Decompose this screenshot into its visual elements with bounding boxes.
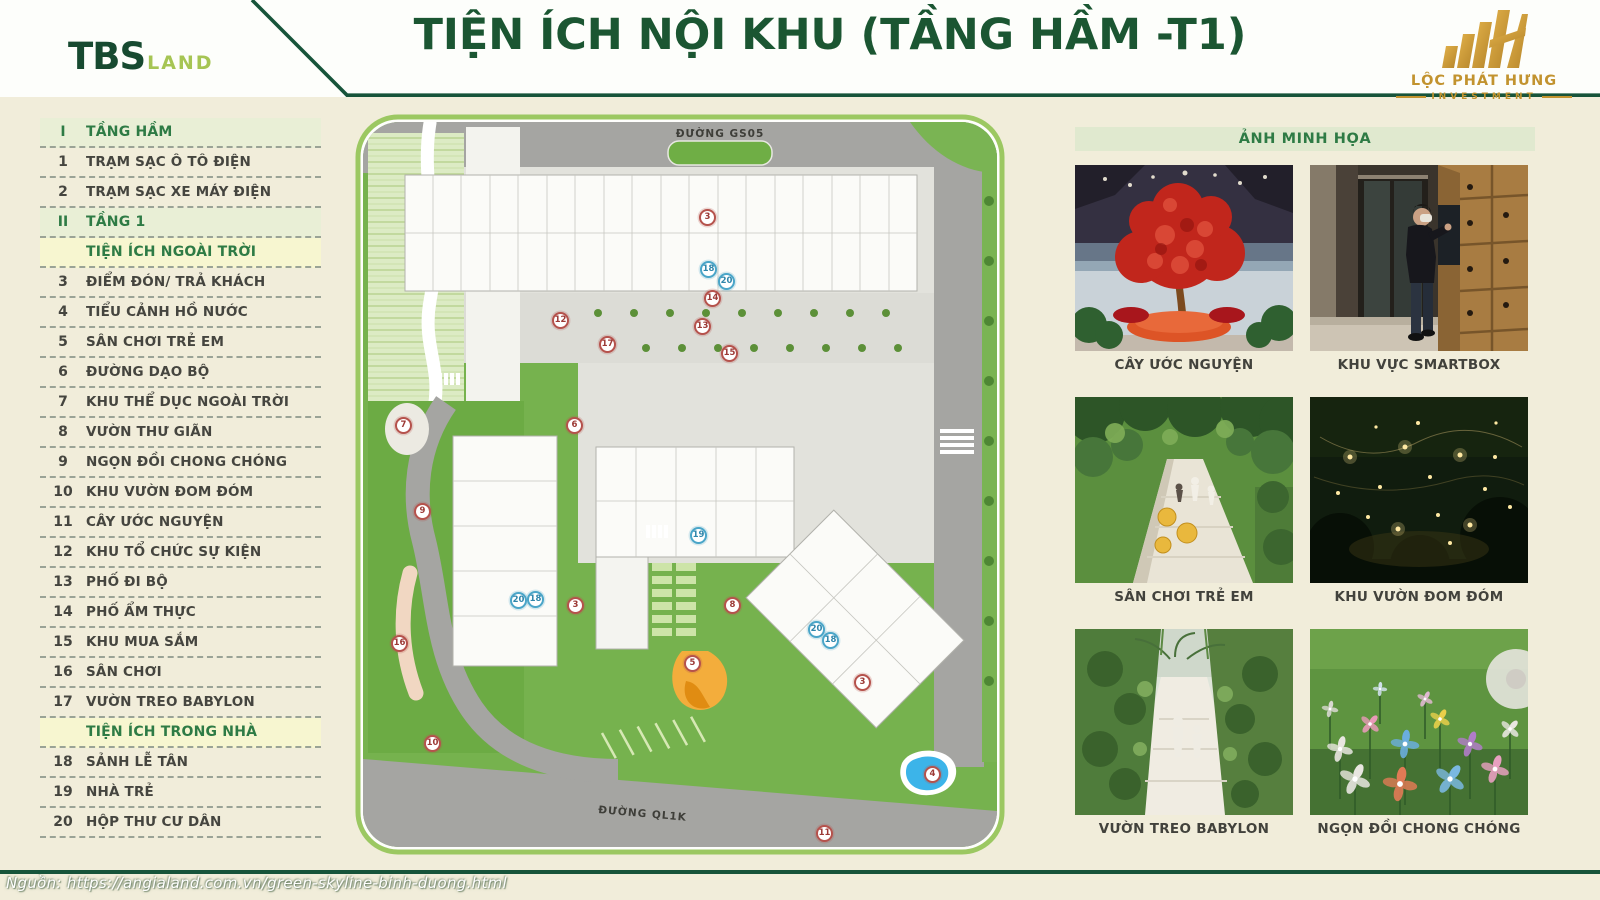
amenity-number: 2: [40, 184, 86, 200]
amenity-number: 3: [40, 274, 86, 290]
amenity-label: HỘP THƯ CƯ DÂN: [86, 814, 222, 830]
site-plan-map: ĐƯỜNG GS05: [350, 111, 1010, 858]
gallery-grid: CÂY ƯỚC NGUYỆN: [1075, 165, 1535, 861]
amenity-label: KHU MUA SẮM: [86, 634, 198, 650]
amenity-label: ĐIỂM ĐÓN/ TRẢ KHÁCH: [86, 274, 265, 290]
amenity-label: CÂY ƯỚC NGUYỆN: [86, 514, 224, 530]
gallery-cell: KHU VƯỜN ĐOM ĐÓM: [1310, 397, 1528, 629]
amenity-row: 20 HỘP THƯ CƯ DÂN: [40, 808, 321, 838]
amenity-label: NHÀ TRẺ: [86, 784, 154, 800]
photo-smartbox: [1310, 165, 1528, 351]
photo-caption: SÂN CHƠI TRẺ EM: [1075, 589, 1293, 607]
amenity-label: SÂN CHƠI TRẺ EM: [86, 334, 224, 350]
amenity-row: 7 KHU THỂ DỤC NGOÀI TRỜI: [40, 388, 321, 418]
photo-caption: VƯỜN TREO BABYLON: [1075, 821, 1293, 839]
photo-caption: CÂY ƯỚC NGUYỆN: [1075, 357, 1293, 375]
amenity-label: VƯỜN THƯ GIÃN: [86, 424, 212, 440]
amenity-number: 20: [40, 814, 86, 830]
map-marker-20: 20: [718, 273, 735, 290]
amenity-number: 18: [40, 754, 86, 770]
lph-bar-chart-icon: [1438, 6, 1530, 72]
amenity-label: VƯỜN TREO BABYLON: [86, 694, 255, 710]
amenity-label: TIỆN ÍCH TRONG NHÀ: [86, 724, 257, 740]
amenity-row: 14 PHỐ ẨM THỰC: [40, 598, 321, 628]
amenity-label: TRẠM SẠC XE MÁY ĐIỆN: [86, 184, 271, 200]
gallery-header: ẢNH MINH HỌA: [1075, 127, 1535, 151]
amenity-row: 10 KHU VƯỜN ĐOM ĐÓM: [40, 478, 321, 508]
map-marker-5: 5: [684, 655, 701, 672]
map-marker-18: 18: [527, 591, 544, 608]
photo-pinwheel-hill: [1310, 629, 1528, 815]
amenity-row: 9 NGỌN ĐỒI CHONG CHÓNG: [40, 448, 321, 478]
map-marker-19: 19: [690, 527, 707, 544]
amenity-row: 4 TIỂU CẢNH HỒ NƯỚC: [40, 298, 321, 328]
map-marker-10: 10: [424, 735, 441, 752]
amenity-row: TIỆN ÍCH TRONG NHÀ: [40, 718, 321, 748]
amenity-label: ĐƯỜNG DẠO BỘ: [86, 364, 209, 380]
amenity-row: 2 TRẠM SẠC XE MÁY ĐIỆN: [40, 178, 321, 208]
amenity-label: SẢNH LỄ TÂN: [86, 754, 188, 770]
amenity-label: TIỆN ÍCH NGOÀI TRỜI: [86, 244, 256, 260]
gallery-cell: SÂN CHƠI TRẺ EM: [1075, 397, 1293, 629]
map-marker-12: 12: [552, 312, 569, 329]
amenity-number: 12: [40, 544, 86, 560]
map-marker-4: 4: [924, 766, 941, 783]
amenity-row: 13 PHỐ ĐI BỘ: [40, 568, 321, 598]
amenity-row: 3 ĐIỂM ĐÓN/ TRẢ KHÁCH: [40, 268, 321, 298]
photo-caption: KHU VƯỜN ĐOM ĐÓM: [1310, 589, 1528, 607]
amenity-label: PHỐ ĐI BỘ: [86, 574, 168, 590]
amenity-row: 19 NHÀ TRẺ: [40, 778, 321, 808]
map-marker-3: 3: [699, 209, 716, 226]
amenity-number: 7: [40, 394, 86, 410]
amenity-number: 1: [40, 154, 86, 170]
amenity-number: 17: [40, 694, 86, 710]
map-marker-3: 3: [567, 597, 584, 614]
illustration-gallery: ẢNH MINH HỌA: [1075, 127, 1535, 861]
gallery-cell: CÂY ƯỚC NGUYỆN: [1075, 165, 1293, 397]
tbs-logo-suffix: LAND: [147, 53, 213, 75]
amenity-label: KHU VƯỜN ĐOM ĐÓM: [86, 484, 253, 500]
amenity-number: 15: [40, 634, 86, 650]
amenity-row: TIỆN ÍCH NGOÀI TRỜI: [40, 238, 321, 268]
amenity-row: 17 VƯỜN TREO BABYLON: [40, 688, 321, 718]
map-marker-13: 13: [694, 318, 711, 335]
page-title: TIỆN ÍCH NỘI KHU (TẦNG HẦM -T1): [330, 10, 1330, 60]
amenity-number: 14: [40, 604, 86, 620]
amenity-row: 1 TRẠM SẠC Ô TÔ ĐIỆN: [40, 148, 321, 178]
amenity-label: KHU TỔ CHỨC SỰ KIỆN: [86, 544, 261, 560]
amenity-label: TIỂU CẢNH HỒ NƯỚC: [86, 304, 248, 320]
amenity-label: TRẠM SẠC Ô TÔ ĐIỆN: [86, 154, 251, 170]
amenity-number: I: [40, 124, 86, 140]
amenity-label: NGỌN ĐỒI CHONG CHÓNG: [86, 454, 287, 470]
amenity-label: SÂN CHƠI: [86, 664, 162, 680]
map-marker-17: 17: [599, 336, 616, 353]
source-url-text: Nguồn: https://angialand.com.vn/green-sk…: [6, 874, 507, 892]
amenity-label: KHU THỂ DỤC NGOÀI TRỜI: [86, 394, 289, 410]
amenity-number: 5: [40, 334, 86, 350]
amenity-number: 19: [40, 784, 86, 800]
amenity-row: 8 VƯỜN THƯ GIÃN: [40, 418, 321, 448]
gallery-cell: KHU VỰC SMARTBOX: [1310, 165, 1528, 397]
photo-firefly-garden: [1310, 397, 1528, 583]
amenity-row: 11 CÂY ƯỚC NGUYỆN: [40, 508, 321, 538]
amenity-row: 6 ĐƯỜNG DẠO BỘ: [40, 358, 321, 388]
map-marker-15: 15: [721, 345, 738, 362]
amenity-row: II TẦNG 1: [40, 208, 321, 238]
amenity-label: TẦNG HẦM: [86, 124, 173, 140]
footer-divider-line: [0, 870, 1600, 874]
loc-phat-hung-logo: LỘC PHÁT HƯNG INVESTMENT: [1396, 6, 1572, 102]
tbs-land-logo: TBS LAND: [68, 38, 214, 75]
lph-logo-name: LỘC PHÁT HƯNG: [1396, 73, 1572, 89]
amenity-number: 8: [40, 424, 86, 440]
map-markers: 318201412131715679192018382018165310411: [350, 111, 1010, 858]
map-marker-7: 7: [395, 417, 412, 434]
amenity-number: 9: [40, 454, 86, 470]
gallery-cell: NGỌN ĐỒI CHONG CHÓNG: [1310, 629, 1528, 861]
photo-babylon-garden: [1075, 629, 1293, 815]
photo-wish-tree: [1075, 165, 1293, 351]
amenity-row: 16 SÂN CHƠI: [40, 658, 321, 688]
photo-kids-playground: [1075, 397, 1293, 583]
amenity-number: 4: [40, 304, 86, 320]
amenity-label: TẦNG 1: [86, 214, 145, 230]
amenities-list: I TẦNG HẦM 1 TRẠM SẠC Ô TÔ ĐIỆN 2 TRẠM S…: [40, 118, 321, 838]
amenity-row: 5 SÂN CHƠI TRẺ EM: [40, 328, 321, 358]
map-marker-18: 18: [700, 261, 717, 278]
amenity-number: 10: [40, 484, 86, 500]
amenity-row: 15 KHU MUA SẮM: [40, 628, 321, 658]
map-marker-16: 16: [391, 635, 408, 652]
amenity-row: 18 SẢNH LỄ TÂN: [40, 748, 321, 778]
map-marker-18: 18: [822, 632, 839, 649]
amenity-number: 13: [40, 574, 86, 590]
gallery-cell: VƯỜN TREO BABYLON: [1075, 629, 1293, 861]
photo-caption: NGỌN ĐỒI CHONG CHÓNG: [1310, 821, 1528, 839]
amenity-number: II: [40, 214, 86, 230]
amenity-label: PHỐ ẨM THỰC: [86, 604, 196, 620]
lph-logo-subtitle: INVESTMENT: [1396, 92, 1572, 102]
map-marker-3: 3: [854, 674, 871, 691]
photo-caption: KHU VỰC SMARTBOX: [1310, 357, 1528, 375]
amenity-row: 12 KHU TỔ CHỨC SỰ KIỆN: [40, 538, 321, 568]
tbs-logo-text: TBS: [68, 38, 145, 75]
amenity-number: 6: [40, 364, 86, 380]
map-marker-9: 9: [414, 503, 431, 520]
map-marker-20: 20: [510, 592, 527, 609]
map-marker-11: 11: [816, 825, 833, 842]
map-marker-14: 14: [704, 290, 721, 307]
amenity-number: 11: [40, 514, 86, 530]
map-marker-6: 6: [566, 417, 583, 434]
amenity-row: I TẦNG HẦM: [40, 118, 321, 148]
map-marker-8: 8: [724, 597, 741, 614]
amenity-number: 16: [40, 664, 86, 680]
